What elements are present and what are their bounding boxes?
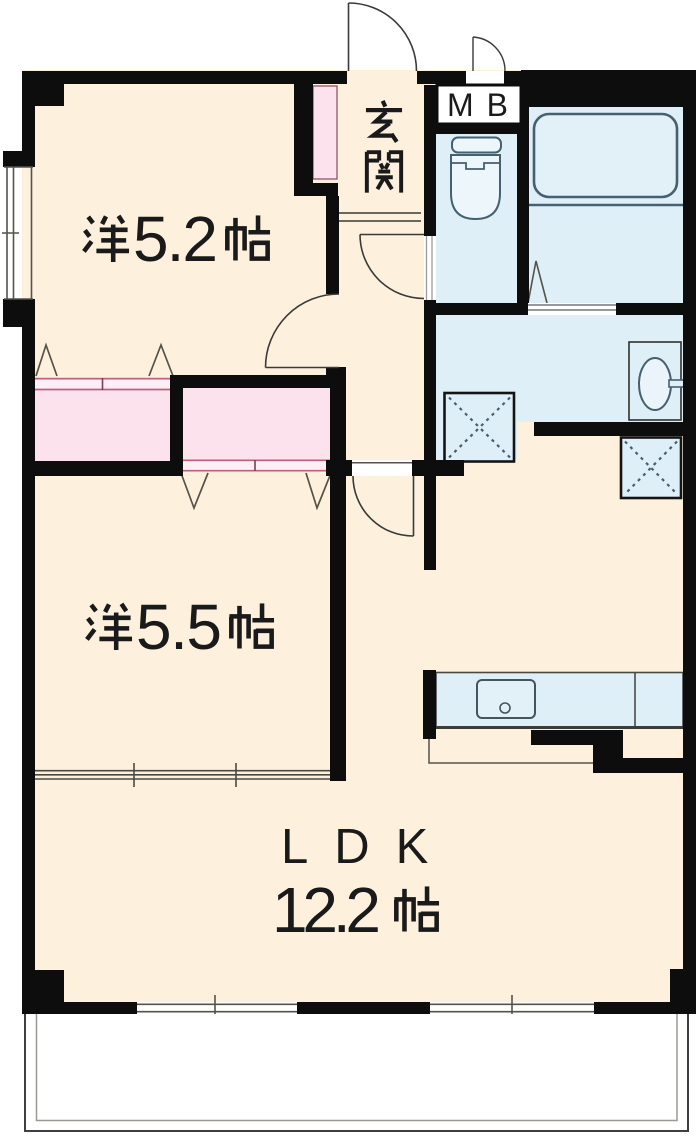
svg-text:MB: MB: [447, 87, 521, 123]
svg-text:12.2: 12.2: [272, 874, 381, 946]
svg-text:5.2: 5.2: [133, 203, 218, 275]
svg-text:5.5: 5.5: [136, 591, 222, 663]
svg-text:LDK: LDK: [281, 820, 454, 874]
